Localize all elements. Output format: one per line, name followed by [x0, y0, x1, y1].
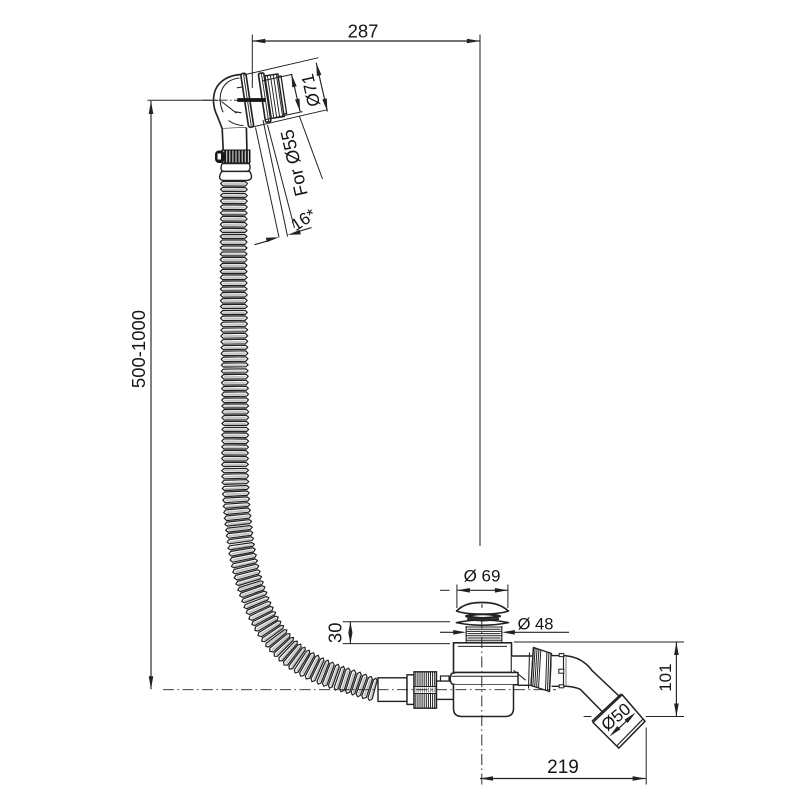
svg-text:30: 30	[325, 623, 346, 644]
svg-text:101: 101	[656, 663, 675, 691]
svg-text:500-1000: 500-1000	[128, 310, 149, 388]
svg-text:219: 219	[547, 757, 579, 778]
svg-text:287: 287	[348, 21, 379, 42]
svg-text:Ø 69: Ø 69	[464, 567, 501, 586]
svg-text:Ø 48: Ø 48	[518, 616, 554, 634]
